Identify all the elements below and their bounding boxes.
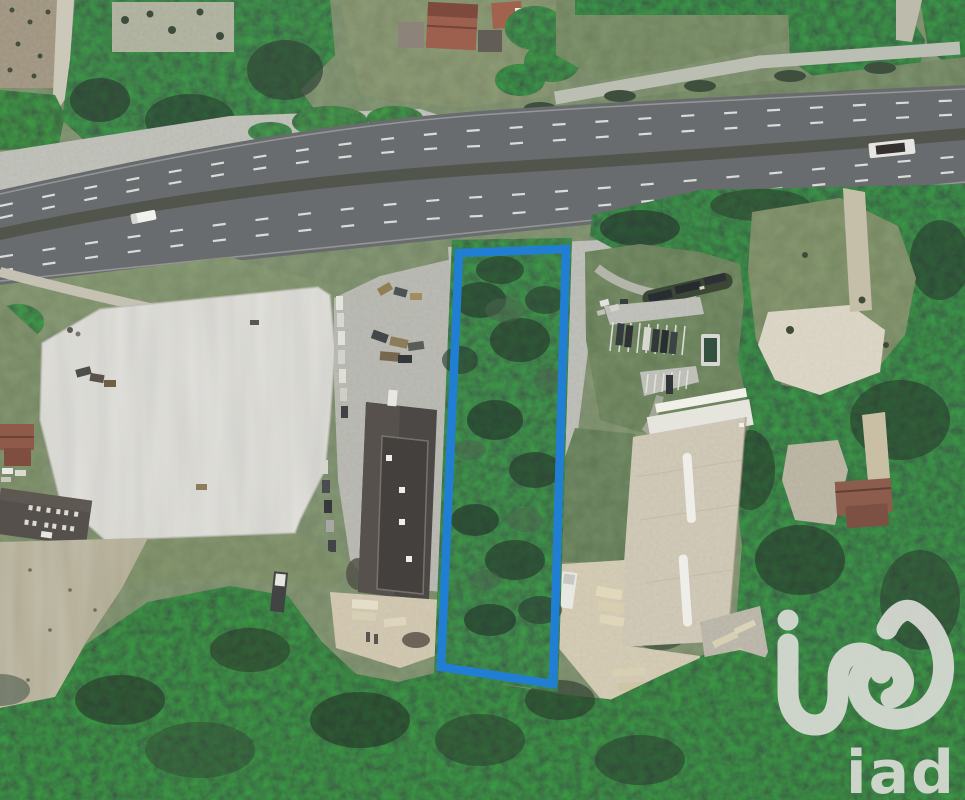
satellite-photo: iad: [0, 0, 965, 800]
iad-logo-text: iad: [846, 738, 956, 800]
iad-logo-mark: [778, 610, 799, 631]
atmosphere-overlay: [0, 0, 965, 800]
